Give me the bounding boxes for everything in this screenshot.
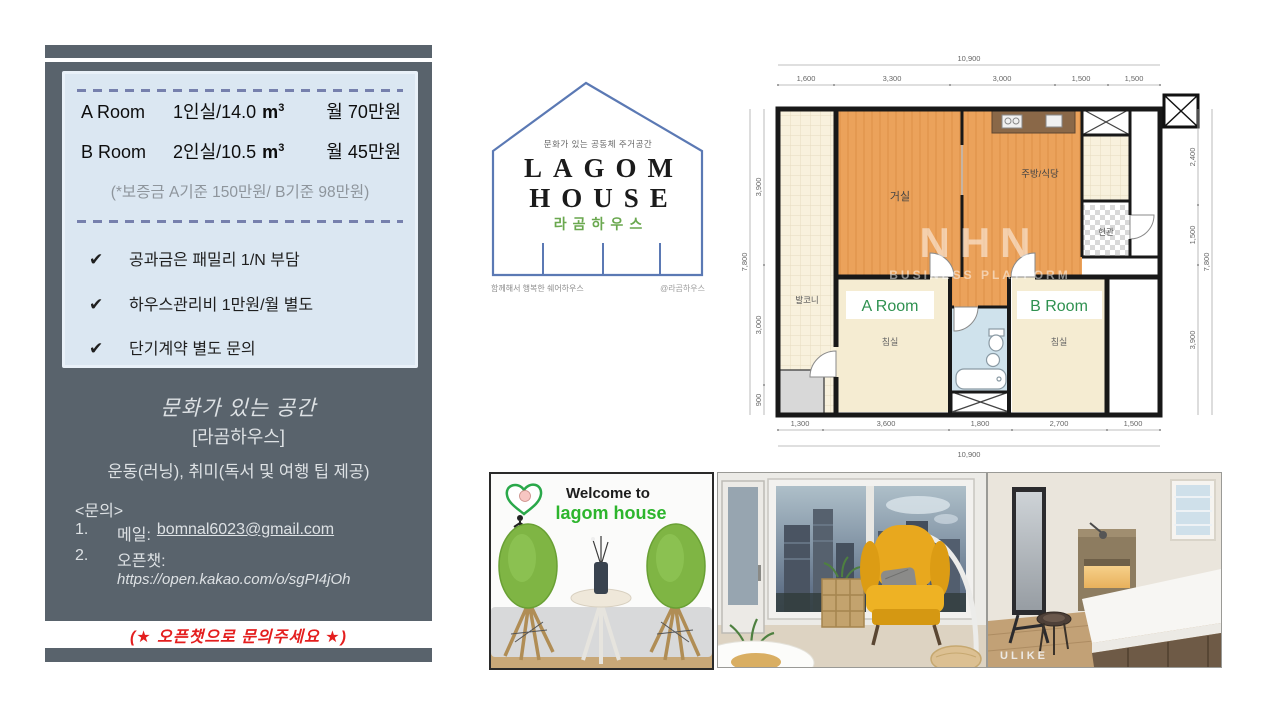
dim-label: 3,000 — [993, 74, 1012, 83]
flyer-bottom-bar — [45, 648, 432, 662]
door-handle — [758, 565, 761, 581]
room-b-desc: 2인실/10.5 — [173, 138, 256, 164]
balcony-label: 발코니 — [795, 295, 818, 305]
bedroom-b-label: 침실 — [1051, 337, 1068, 347]
faucet-icon — [997, 377, 1001, 381]
dim-label: 1,500 — [1125, 74, 1144, 83]
toilet-icon — [989, 335, 1003, 351]
headboard-light — [1084, 566, 1130, 588]
dim-label: 2,400 — [1188, 148, 1197, 167]
dim-label: 10,900 — [958, 450, 981, 459]
floor-plan: NHN BUSINESS PLATFORM 발코니 거실 주방/식당 현관 A … — [740, 45, 1240, 460]
small-window — [1170, 479, 1216, 541]
dim-label: 1,500 — [1072, 74, 1091, 83]
bath-hatch-icon — [952, 392, 1009, 412]
culture-tagline: 문화가 있는 공간 — [45, 392, 432, 422]
checklist-item: ✔ 단기계약 별도 문의 — [89, 335, 256, 359]
flyer-panel: A Room 1인실/14.0 m3 월 70만원 B Room 2인실/10.… — [45, 62, 432, 621]
elevator-icon — [1164, 95, 1198, 127]
room-b-label: B Room — [1030, 298, 1088, 315]
poster-page: A Room 1인실/14.0 m3 월 70만원 B Room 2인실/10.… — [0, 0, 1280, 720]
dim-label: 1,800 — [971, 419, 990, 428]
room-b-price: 월 45만원 — [326, 138, 401, 164]
woven-stool — [931, 646, 981, 667]
room-a-name: A Room — [81, 102, 173, 123]
check-icon: ✔ — [89, 250, 129, 270]
living-label: 거실 — [890, 190, 910, 203]
kitchen-label: 주방/식당 — [1021, 169, 1059, 180]
check-icon: ✔ — [89, 295, 129, 315]
deposit-note: (*보증금 A기준 150만원/ B기준 98만원) — [65, 180, 415, 202]
room-a-desc: 1인실/14.0 — [173, 98, 256, 124]
openchat-link[interactable]: https://open.kakao.com/o/sgPI4jOh — [117, 571, 350, 588]
dim-label: 2,700 — [1050, 419, 1069, 428]
photo-watermark: ULIKE — [1000, 650, 1048, 662]
bedroom-a-label: 침실 — [882, 337, 899, 347]
contact-number: 1. — [75, 521, 117, 545]
logo-korean-name: 라곰하우스 — [554, 216, 648, 232]
balcony-door — [722, 481, 764, 633]
contact-heading: <문의> — [75, 497, 123, 521]
room-a-price-row: A Room 1인실/14.0 m3 월 70만원 — [81, 98, 401, 124]
room-b-name: B Room — [81, 142, 173, 163]
checklist-item: ✔ 하우스관리비 1만원/월 별도 — [89, 291, 313, 315]
photo-welcome-room: Welcome to lagom house — [489, 472, 714, 670]
activities-line: 운동(러닝), 취미(독서 및 여행 팁 제공) — [45, 458, 432, 482]
photo-bedroom-art: ULIKE — [988, 473, 1221, 667]
email-link[interactable]: bomnal6023@gmail.com — [157, 521, 334, 545]
closet-hatch-icon — [1082, 109, 1130, 135]
checklist-text: 공과금은 패밀리 1/N 부담 — [129, 246, 300, 270]
dim-label: 1,600 — [797, 74, 816, 83]
sink-icon — [1046, 115, 1062, 127]
logo-subtitle: 문화가 있는 공동체 주거공간 — [544, 139, 652, 149]
contact-openchat-line: 2. 오픈챗: — [75, 547, 172, 571]
dim-label: 10,900 — [958, 54, 981, 63]
room-a-price: 월 70만원 — [326, 98, 401, 124]
check-icon: ✔ — [89, 339, 129, 359]
dim-label: 1,300 — [791, 419, 810, 428]
dashed-divider — [77, 89, 403, 92]
room-info-box: A Room 1인실/14.0 m3 월 70만원 B Room 2인실/10.… — [62, 71, 418, 368]
dim-label: 7,800 — [740, 253, 749, 272]
kitchen-counter — [992, 111, 1075, 133]
welcome-caption-line2: lagom house — [555, 503, 666, 523]
contact-label: 오픈챗: — [117, 547, 166, 571]
lagom-house-logo: 문화가 있는 공동체 주거공간 LAGOM HOUSE 라곰하우스 함께해서 행… — [487, 80, 710, 295]
room-a-unit: m3 — [262, 102, 284, 123]
dim-label: 3,600 — [877, 419, 896, 428]
dim-label: 3,900 — [1188, 331, 1197, 350]
contact-label: 메일: — [117, 521, 151, 545]
dim-label: 1,500 — [1188, 226, 1197, 245]
contact-number: 2. — [75, 547, 117, 571]
dim-label: 3,300 — [883, 74, 902, 83]
dim-label: 3,900 — [754, 178, 763, 197]
contact-email-line: 1. 메일: bomnal6023@gmail.com — [75, 521, 334, 545]
vase — [594, 562, 608, 594]
checklist-text: 하우스관리비 1만원/월 별도 — [129, 291, 313, 315]
checklist-text: 단기계약 별도 문의 — [129, 335, 256, 359]
room-b-price-row: B Room 2인실/10.5 m3 월 45만원 — [81, 138, 401, 164]
flyer-top-bar — [45, 45, 432, 58]
photo-welcome-art: Welcome to lagom house — [491, 474, 712, 668]
logo-name-line1: LAGOM — [524, 153, 684, 183]
checklist-item: ✔ 공과금은 패밀리 1/N 부담 — [89, 246, 300, 270]
dim-label: 3,000 — [754, 316, 763, 335]
glass-reflection — [886, 496, 950, 514]
svg-text:NHN: NHN — [920, 219, 1041, 266]
photo-living-art — [718, 473, 986, 667]
dim-label: 1,500 — [1124, 419, 1143, 428]
dim-label: 7,800 — [1202, 253, 1211, 272]
utility-floor — [1082, 135, 1130, 201]
house-name: [라곰하우스] — [45, 423, 432, 449]
photo-living-room — [717, 472, 987, 668]
svg-text:BUSINESS PLATFORM: BUSINESS PLATFORM — [889, 268, 1070, 282]
photo-bedroom: ULIKE — [987, 472, 1222, 668]
welcome-caption-line1: Welcome to — [566, 485, 650, 502]
logo-name-line2: HOUSE — [529, 183, 679, 213]
washbasin-icon — [987, 354, 1000, 367]
logo-social-handle: @라곰하우스 — [660, 283, 705, 293]
room-a-label: A Room — [862, 298, 919, 315]
room-b-unit: m3 — [262, 142, 284, 163]
dim-label: 900 — [754, 394, 763, 407]
entrance-label: 현관 — [1098, 227, 1114, 237]
dashed-divider — [77, 220, 403, 223]
footer-note: (★ 오픈챗으로 문의주세요 ★) — [45, 621, 432, 648]
logo-bottom-left-tagline: 함께해서 행복한 쉐어하우스 — [491, 283, 584, 293]
